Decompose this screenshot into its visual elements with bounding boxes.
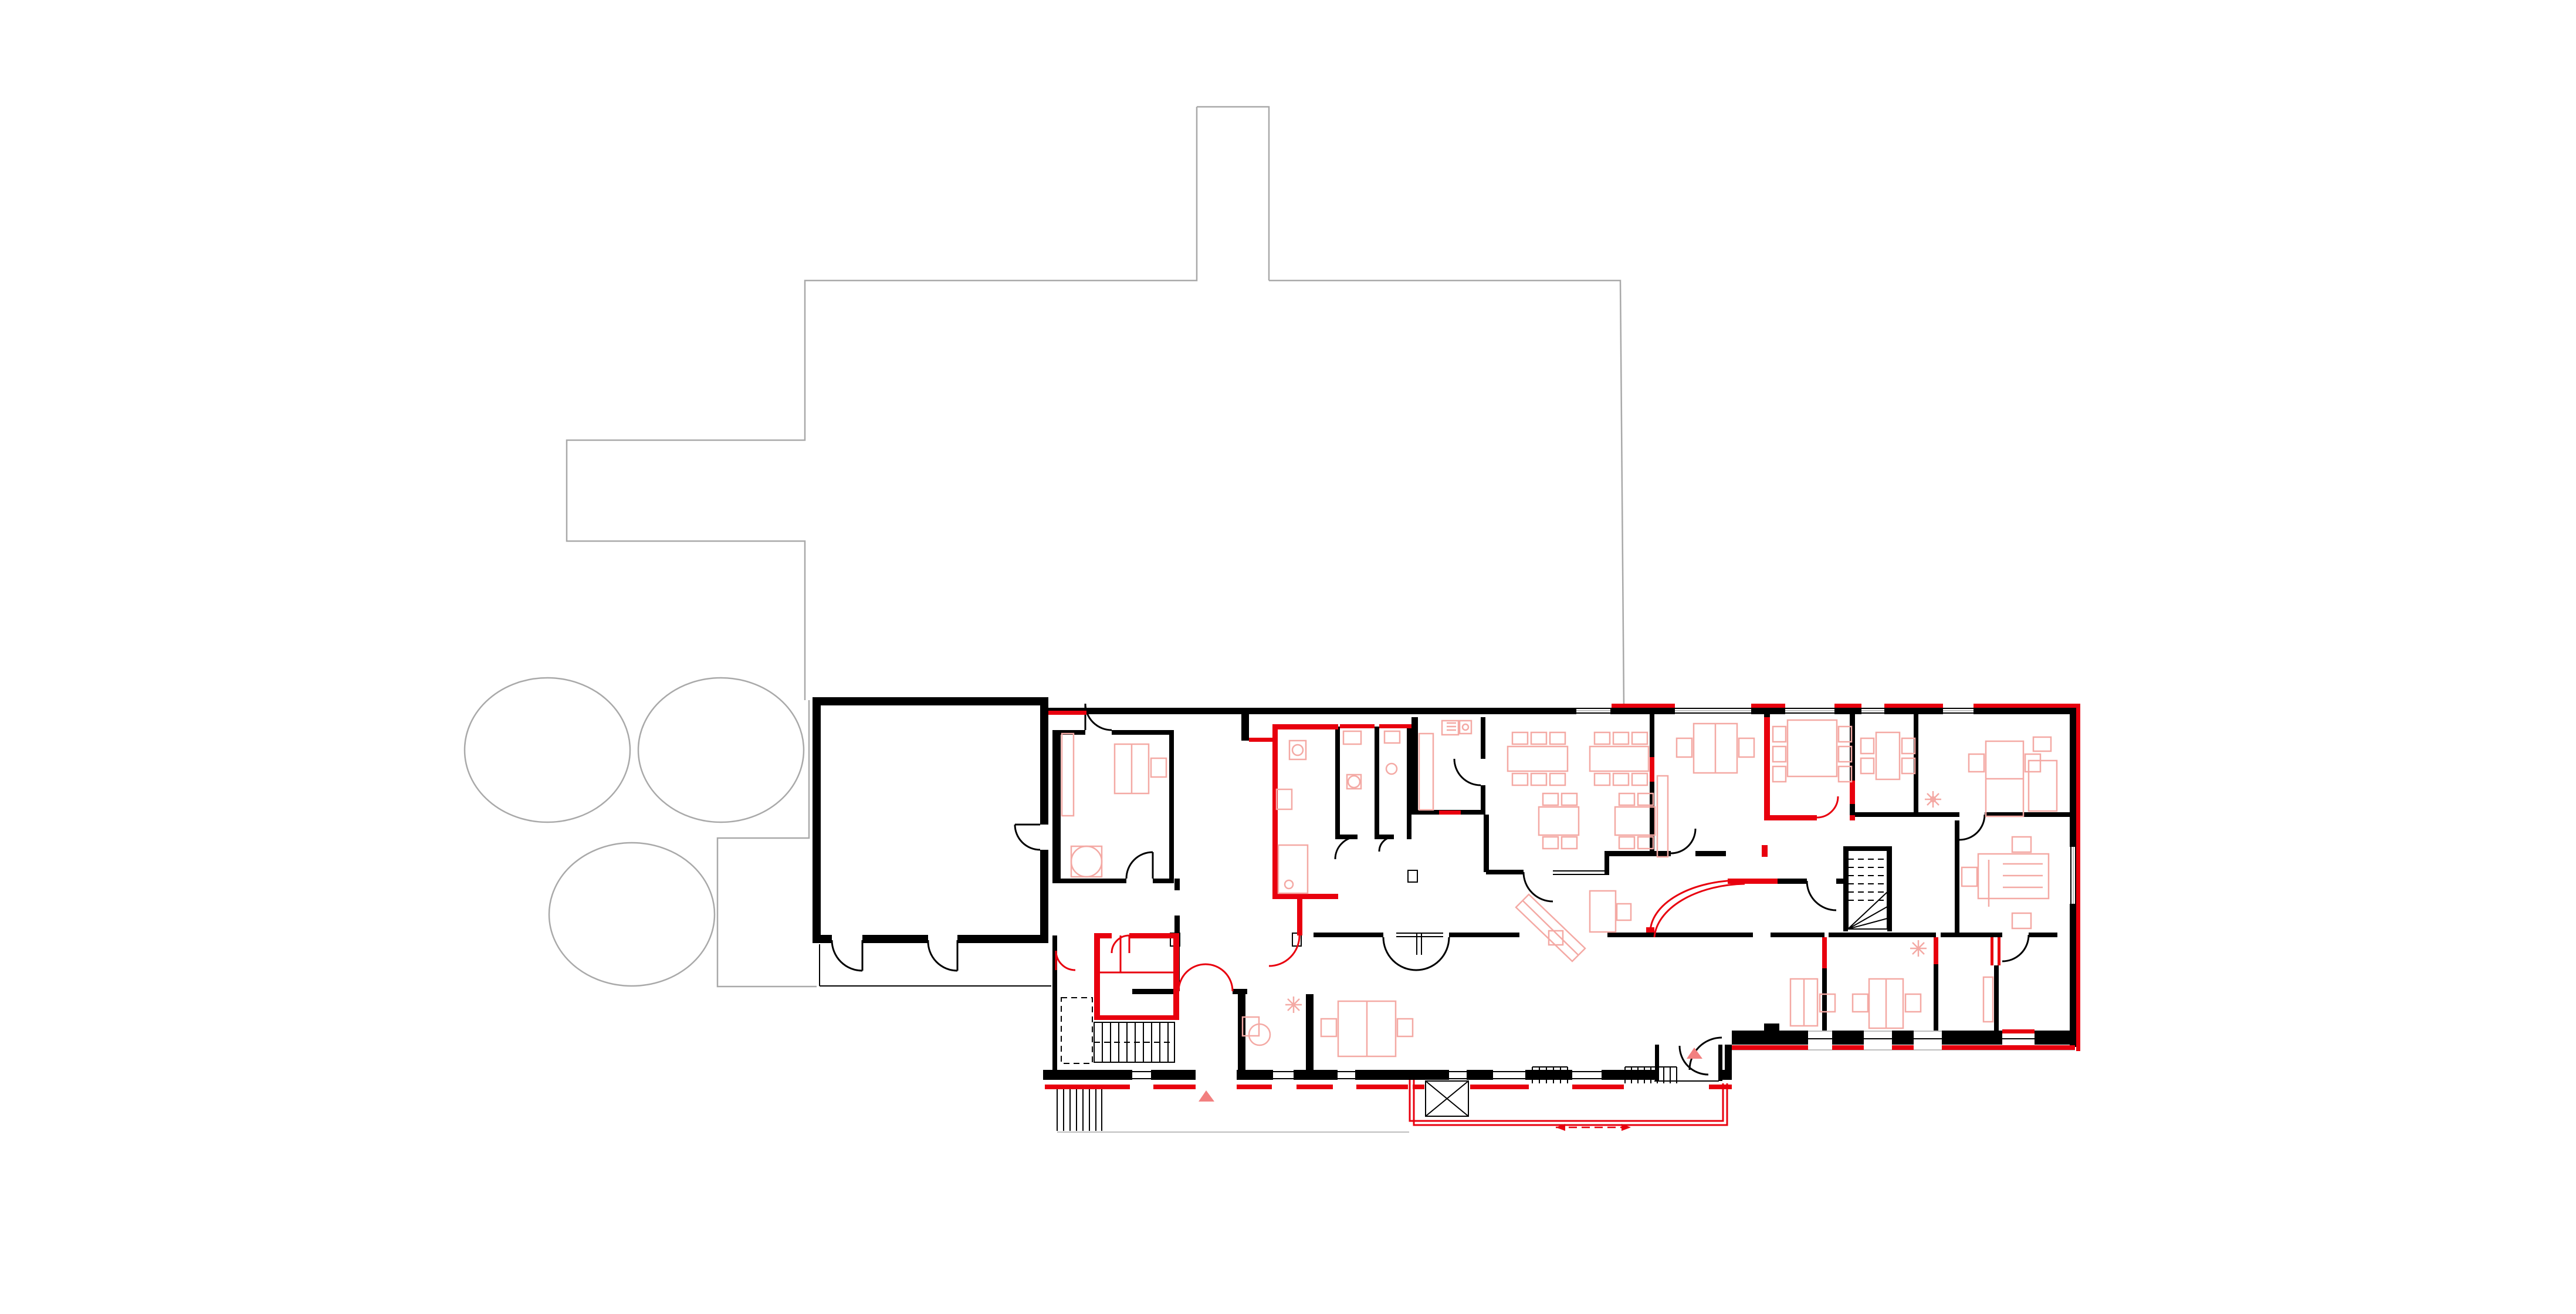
new-red-strokes-path [1410, 1080, 1727, 1125]
doors-stairs-black-path [1524, 872, 1553, 901]
furniture-pink-circle [1285, 880, 1293, 889]
window-frames-thin-black-path [1396, 933, 1443, 955]
wall-fills-black-rect [1942, 1031, 2002, 1045]
new-red-fills-rect [1709, 1085, 1732, 1089]
furniture-pink-rect [1632, 773, 1647, 785]
wall-fills-black-rect [957, 935, 1048, 943]
furniture-pink-rect [1543, 793, 1558, 805]
furniture-pink-rect [1590, 891, 1616, 932]
wall-fills-black-rect [1048, 708, 1576, 714]
furniture-pink-rect [1861, 738, 1874, 754]
furniture-pink-path [1925, 791, 1941, 808]
wall-fills-black-rect [1892, 1031, 1914, 1045]
new-red-fills-rect [1094, 935, 1100, 1020]
furniture-pink-path [1989, 860, 2043, 907]
stairs-detail-black-path [1057, 1089, 1102, 1131]
furniture-pink-rect [2033, 737, 2051, 751]
doors-stairs-black-path [928, 940, 957, 971]
floor-plan-page [0, 0, 2576, 1314]
furniture-pink-rect [1839, 727, 1851, 742]
wall-fills-black-rect [1855, 812, 1959, 817]
furniture-pink-rect [1773, 746, 1786, 762]
new-red-fills-rect [1850, 781, 1855, 804]
furniture-pink-rect [1619, 793, 1634, 805]
furniture-pink-rect [1902, 738, 1915, 754]
furniture-pink [1062, 720, 2057, 1056]
furniture-pink-path [1285, 997, 1302, 1013]
wall-fills-black-rect [1771, 933, 1824, 937]
new-red-fills-rect [1991, 937, 1993, 965]
wall-fills-black-rect [1061, 879, 1126, 883]
wall-fills-black-rect [1375, 727, 1379, 839]
furniture-pink-rect [1562, 793, 1577, 805]
new-red-fills-rect [1094, 1015, 1179, 1020]
furniture-pink-rect [1969, 754, 1984, 772]
furniture-pink-rect [1550, 773, 1565, 785]
wall-fills-black-rect [1994, 965, 1999, 1031]
wall-fills-black-rect [1732, 1031, 1808, 1045]
wall-fills-black-rect [1484, 815, 1489, 872]
new-red-fills-rect [1834, 704, 1861, 708]
wall-fills-black-rect [1607, 851, 1671, 856]
furniture-pink-rect [1595, 732, 1610, 744]
furniture-pink-rect [1385, 731, 1400, 743]
new-red-fills-rect [1612, 704, 1675, 708]
wall-fills-black-rect [1843, 846, 1848, 931]
furniture-pink-rect [1657, 776, 1668, 857]
furniture-pink-rect [1876, 732, 1900, 779]
wall-fills-black-rect [1822, 968, 1827, 1031]
new-red-strokes-path [1100, 935, 1173, 972]
wall-fills-black-rect [2070, 904, 2077, 1047]
doors-stairs-black-path [1454, 759, 1481, 785]
new-red-fills-rect [1764, 815, 1817, 820]
wall-fills-black-rect [1233, 989, 1247, 994]
new-red-fills-rect [1884, 704, 1943, 708]
new-red-fills-rect [1237, 1085, 1272, 1089]
furniture-pink-rect [1677, 738, 1692, 757]
new-red-fills-rect [1751, 704, 1785, 708]
furniture-pink-rect [1861, 758, 1874, 773]
furniture-pink-circle [1386, 764, 1397, 774]
furniture-pink-rect [1739, 738, 1754, 757]
wall-fills-black-rect [813, 935, 832, 943]
furniture-pink-rect [1062, 734, 1074, 816]
furniture-pink-path [1910, 940, 1927, 957]
window-frames-thin-black-path [820, 944, 1051, 986]
furniture-pink-rect [1419, 734, 1433, 810]
new-red-fills-rect [1379, 724, 1411, 728]
furniture-pink-path [1804, 979, 1886, 1028]
new-red-fills-rect [1764, 717, 1770, 820]
furniture-pink-rect [2012, 913, 2031, 928]
doors-stairs-black [832, 704, 2029, 1075]
furniture-pink-rect [1508, 746, 1568, 771]
wall-fills-black-rect [2070, 708, 2077, 847]
wall-fills-black-rect [1695, 851, 1726, 856]
wall-fills-black-rect [1934, 964, 1938, 1031]
wall-fills-black-rect [1237, 1070, 1409, 1080]
new-red-fills-rect [1832, 1045, 1864, 1050]
furniture-pink-rect [1539, 807, 1579, 835]
wall-fills-black-rect [1112, 730, 1174, 735]
furniture-pink-rect [1550, 732, 1565, 744]
new-red-fills-rect [1892, 1045, 1914, 1050]
furniture-pink-rect [1151, 758, 1166, 777]
new-red-fills-rect [1732, 1045, 1808, 1050]
stairs-detail-black-path [1848, 892, 1887, 929]
new-red-fills-rect [1297, 1085, 1333, 1089]
new-red-fills-rect [1272, 724, 1278, 899]
furniture-pink-rect [1773, 727, 1786, 742]
wall-fills-black-rect [1449, 933, 1519, 937]
furniture-pink-rect [1839, 766, 1851, 782]
new-red-fills-rect [2076, 704, 2080, 1051]
wall-fills-black-rect [1764, 1023, 1779, 1031]
furniture-pink-rect [2029, 761, 2057, 811]
wall-fills-black-rect [1832, 1031, 1864, 1045]
new-red-fills-rect [1272, 894, 1338, 899]
stairs-dashed-black-path [1061, 998, 1092, 1063]
wall-fills-black-rect [1040, 697, 1048, 825]
doors-stairs-black-path [1671, 829, 1695, 853]
new-red-fills-rect [1822, 937, 1827, 968]
wall-fills-black-rect [1306, 994, 1314, 1072]
furniture-pink-rect [1902, 758, 1915, 773]
furniture-pink-rect [1595, 773, 1610, 785]
new-red-fills-rect [1572, 1085, 1624, 1089]
wall-fills-black-rect [1834, 708, 1861, 714]
wall-fills-black-rect [1407, 727, 1411, 839]
wall-fills-black-rect [2035, 1031, 2070, 1045]
new-red-fills-rect [1974, 704, 2080, 708]
site-outline-path [717, 700, 817, 987]
furniture-pink-circle [1463, 724, 1468, 730]
wall-fills-black-rect [1174, 879, 1180, 890]
wall-fills-black-rect [1607, 933, 1753, 937]
doors-stairs-black-path [1085, 704, 1112, 730]
wall-fills-black-rect [1409, 1070, 1658, 1080]
furniture-pink-circle [1348, 776, 1360, 788]
furniture-pink-rect [1613, 773, 1629, 785]
new-red-fills-rect [1942, 1045, 2075, 1050]
new-red-fills-rect [1340, 724, 1375, 728]
wall-fills-black-rect [1974, 708, 2080, 714]
wall-fills-black-rect [1778, 879, 1807, 884]
wall-fills-black-rect [1241, 714, 1249, 741]
new-red-strokes-path [1650, 880, 1745, 937]
wall-fills-black-rect [1887, 846, 1892, 931]
wall-fills-black-rect [862, 935, 928, 943]
new-red-strokes-path [1269, 935, 1299, 966]
wall-fills-black-rect [1836, 879, 1843, 884]
wall-fills-black [813, 697, 2080, 1081]
furniture-pink-rect [1590, 746, 1648, 771]
entry-markers-salmon-path [1199, 1090, 1214, 1102]
wall-fills-black-rect [1314, 933, 1383, 937]
furniture-pink-rect [1788, 720, 1837, 776]
doors-stairs-black-path [1126, 852, 1153, 879]
wall-fills-black-rect [1843, 846, 1892, 851]
furniture-pink-rect [1277, 789, 1292, 809]
wall-fills-black-rect [1052, 730, 1061, 883]
new-red-fills-rect [1272, 724, 1338, 729]
new-red-fills-rect [1998, 937, 2000, 965]
furniture-pink-rect [1512, 732, 1528, 744]
site-outline-ellipse [465, 678, 630, 822]
wall-fills-black-rect [1610, 708, 1675, 714]
new-red-fills-rect [1249, 738, 1272, 742]
furniture-pink-rect [1321, 1019, 1336, 1036]
furniture-pink-rect [1853, 994, 1868, 1012]
new-red-strokes-path [1179, 964, 1233, 991]
doors-stairs-black-path [2002, 935, 2029, 961]
stairs-dashed-black-path [1848, 859, 1887, 900]
window-frames-thin-black-path [1553, 871, 1609, 874]
furniture-pink-path [1447, 723, 1456, 730]
doors-stairs-black-path [1015, 825, 1040, 850]
furniture-pink-rect [1962, 867, 1977, 886]
doors-stairs-black-path [1807, 881, 1836, 910]
wall-fills-black-rect [1829, 933, 1936, 937]
wall-fills-black-rect [1725, 1045, 1732, 1071]
furniture-pink-rect [1615, 807, 1655, 835]
furniture-pink-rect [1619, 837, 1634, 849]
new-red-fills-rect [1850, 815, 1855, 820]
furniture-pink-rect [1347, 775, 1361, 789]
doors-stairs-black-path [1959, 815, 1985, 840]
wall-fills-black-rect [1486, 870, 1524, 874]
doors-stairs-black-path [832, 940, 862, 971]
furniture-pink-path [1516, 894, 1585, 961]
site-outline-ellipse [638, 678, 804, 822]
new-red-fills-rect [1153, 1085, 1196, 1089]
furniture-pink-circle [1071, 846, 1102, 877]
wall-fills-black-rect [1169, 730, 1174, 883]
wall-fills-black-rect [2029, 933, 2057, 937]
wall-fills-black-rect [1941, 933, 2002, 937]
floor-plan-canvas [0, 0, 2576, 1314]
furniture-pink-rect [1617, 904, 1631, 920]
furniture-pink-rect [1562, 837, 1577, 849]
wall-fills-black-rect [1132, 989, 1179, 994]
wall-fills-black-rect [1043, 1070, 1196, 1080]
furniture-pink-rect [1531, 732, 1546, 744]
furniture-pink-rect [1343, 731, 1361, 744]
new-red-fills-rect [1439, 810, 1461, 815]
new-red-strokes-path [1056, 951, 1075, 970]
new-red-fills-rect [1129, 933, 1179, 938]
new-red-fills-rect [2002, 1029, 2035, 1033]
wall-fills-black-rect [1411, 717, 1418, 815]
window-cutouts-white-rect [1196, 1070, 1237, 1080]
furniture-pink-rect [1773, 766, 1786, 782]
new-red-strokes-path [1817, 796, 1838, 818]
stairs-detail-black-path [1426, 1081, 1468, 1116]
furniture-pink-rect [1460, 721, 1471, 734]
site-terrace-lines [1057, 711, 2075, 1132]
new-red-fills-rect [1650, 757, 1654, 782]
new-red-fills-rect [1173, 935, 1179, 1020]
wall-fills-black-rect [1238, 994, 1245, 1072]
furniture-pink-rect [2012, 837, 2031, 852]
wall-fills-black-rect [813, 697, 821, 943]
site-outline-ellipse [549, 843, 715, 986]
window-cutouts-white-rect [1658, 1045, 1719, 1080]
wall-fills-black-rect [1955, 820, 1959, 933]
wall-fills-black-rect [1040, 850, 1048, 943]
new-red-fills-rect [1934, 937, 1938, 964]
furniture-pink-rect [1983, 977, 1993, 1022]
new-red-fills-rect [1356, 1085, 1408, 1089]
wall-fills-black-rect [1481, 717, 1485, 759]
furniture-pink-rect [1543, 837, 1558, 849]
furniture-pink-rect [1613, 732, 1629, 744]
wall-fills-black-rect [1153, 879, 1174, 883]
new-red-fills-rect [1045, 1085, 1130, 1089]
furniture-pink-rect [1632, 732, 1647, 744]
furniture-pink-rect [2025, 754, 2040, 772]
furniture-pink-rect [1512, 773, 1528, 785]
doors-stairs-black-path [1335, 837, 1358, 859]
new-red-fills-rect [1094, 933, 1112, 938]
new-red-fills-rect [1297, 899, 1302, 935]
new-red-fills-rect [1048, 711, 1086, 715]
furniture-pink-rect [1839, 746, 1851, 762]
site-outline-path [1269, 281, 1624, 707]
wall-fills-black-rect [1335, 727, 1340, 839]
site-outline-path [567, 107, 1269, 700]
furniture-pink-circle [1292, 745, 1303, 755]
furniture-pink-rect [1905, 994, 1921, 1012]
furniture-pink-rect [1531, 773, 1546, 785]
furniture-pink-rect [1397, 1019, 1413, 1036]
new-red-fills-rect [1470, 1085, 1529, 1089]
furniture-pink-rect [1820, 994, 1835, 1012]
wall-fills-black-rect [813, 697, 1048, 705]
new-red-fills-rect [1762, 845, 1768, 857]
